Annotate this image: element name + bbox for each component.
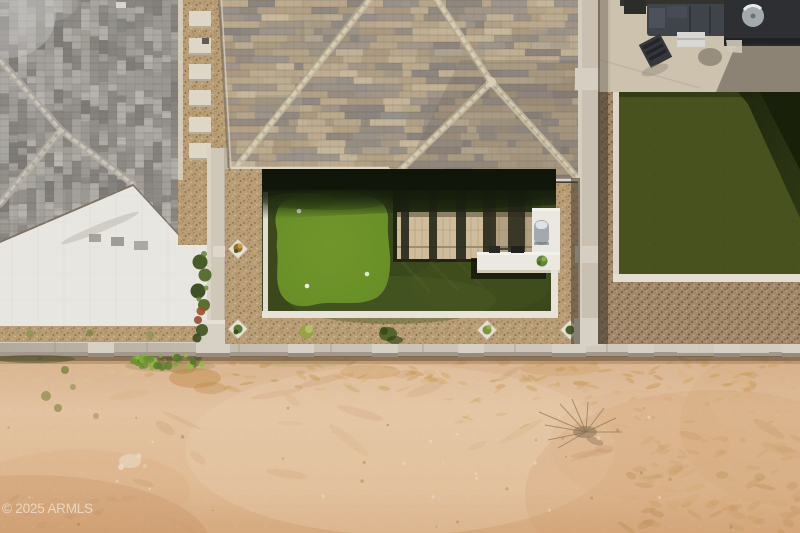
svg-text:© 2025 ARMLS: © 2025 ARMLS <box>2 501 93 516</box>
